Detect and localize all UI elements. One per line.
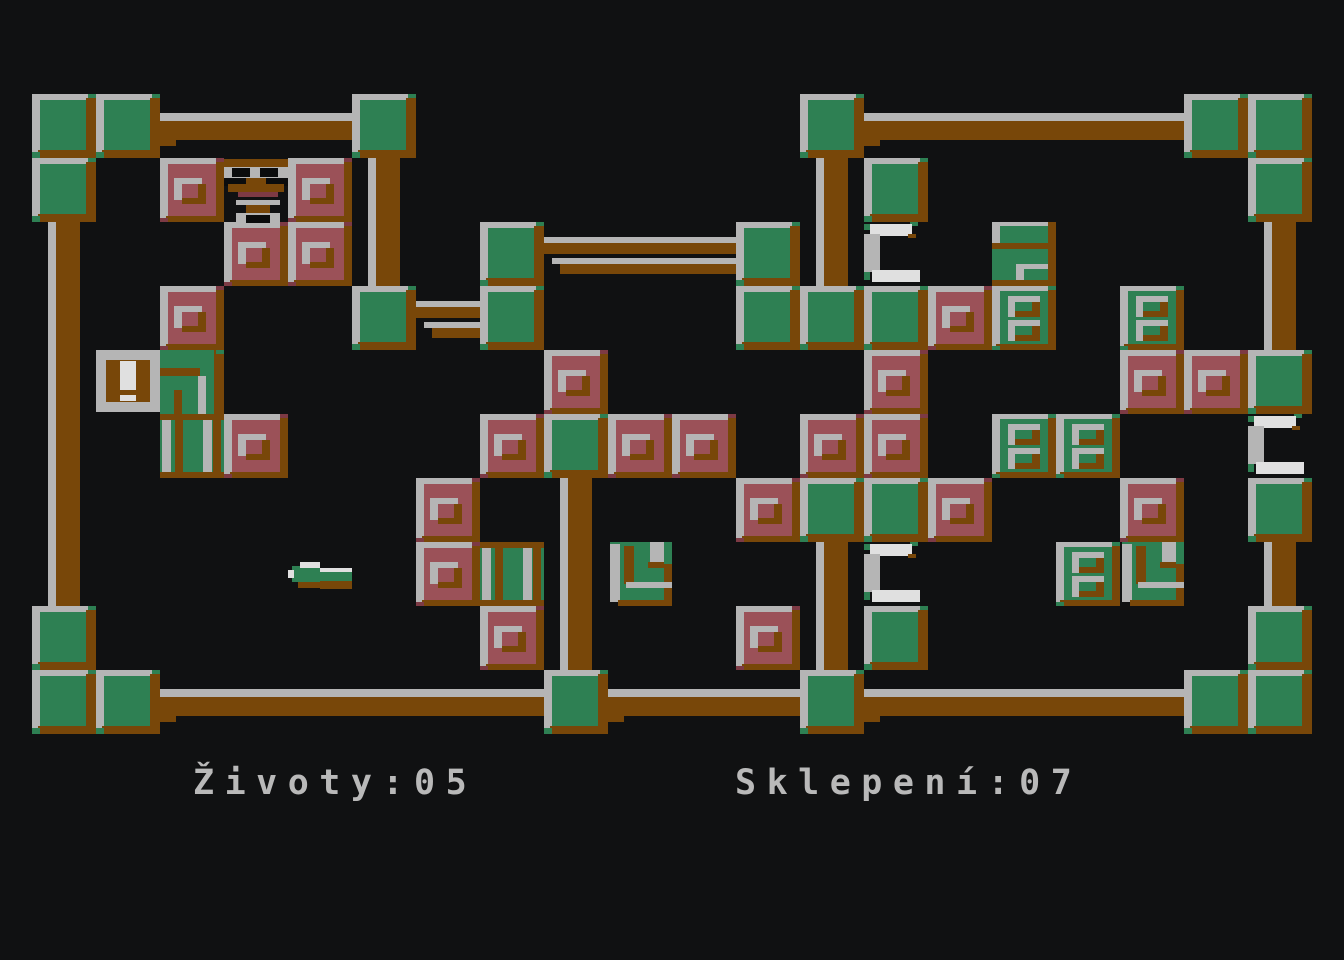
- game-screen[interactable]: Životy:05 Sklepení:07: [0, 0, 1344, 960]
- pink-stud-block: [864, 414, 928, 478]
- green-block: [352, 94, 416, 158]
- beam: [416, 286, 480, 350]
- striped-block: [160, 414, 224, 478]
- pillar: [1248, 222, 1312, 350]
- pink-stud-block: [672, 414, 736, 478]
- pillar: [800, 158, 864, 286]
- pink-stud-block: [1120, 478, 1184, 542]
- beam: [864, 670, 1184, 734]
- pink-stud-block: [288, 222, 352, 286]
- pink-stud-block: [288, 158, 352, 222]
- green-block: [352, 286, 416, 350]
- green-block: [1248, 606, 1312, 670]
- pink-stud-block: [480, 414, 544, 478]
- key-block: [1120, 542, 1184, 606]
- door-block: [160, 350, 224, 414]
- green-block: [1248, 94, 1312, 158]
- green-block: [544, 670, 608, 734]
- window-block: [1120, 286, 1184, 350]
- pink-stud-block: [224, 222, 288, 286]
- green-block: [800, 286, 864, 350]
- beam: [160, 670, 544, 734]
- window-block: [992, 286, 1056, 350]
- horseshoe-sprite: [864, 222, 928, 286]
- green-block: [96, 670, 160, 734]
- pink-stud-block: [736, 478, 800, 542]
- pink-stud-block: [160, 158, 224, 222]
- pillar: [544, 478, 608, 670]
- striped-block: [480, 542, 544, 606]
- window-block: [1056, 414, 1120, 478]
- green-block: [736, 286, 800, 350]
- green-block: [1184, 670, 1248, 734]
- exclamation-block: [96, 350, 160, 414]
- game-board: [0, 0, 1344, 960]
- green-block: [96, 94, 160, 158]
- beam: [608, 670, 800, 734]
- pink-stud-block: [800, 414, 864, 478]
- pillar: [800, 542, 864, 670]
- green-block: [1184, 94, 1248, 158]
- beam: [864, 94, 1184, 158]
- pink-stud-block: [864, 350, 928, 414]
- green-block: [1248, 158, 1312, 222]
- pink-stud-block: [416, 542, 480, 606]
- green-block: [32, 94, 96, 158]
- green-block: [1248, 478, 1312, 542]
- key-block: [608, 542, 672, 606]
- dungeon-counter: Sklepení:07: [735, 763, 1082, 803]
- pink-stud-block: [928, 286, 992, 350]
- green-block: [32, 158, 96, 222]
- green-block: [32, 606, 96, 670]
- arrow-sprite: [288, 542, 352, 606]
- pink-stud-block: [928, 478, 992, 542]
- green-block: [480, 286, 544, 350]
- window-block: [992, 414, 1056, 478]
- pink-stud-block: [224, 414, 288, 478]
- beam: [544, 222, 736, 286]
- pink-stud-block: [736, 606, 800, 670]
- pink-stud-block: [1120, 350, 1184, 414]
- horseshoe-sprite: [864, 542, 928, 606]
- spider-sprite: [224, 158, 288, 222]
- pink-stud-block: [1184, 350, 1248, 414]
- pillar: [352, 158, 416, 286]
- green-block: [480, 222, 544, 286]
- lives-counter: Životy:05: [193, 763, 477, 803]
- green-block: [864, 606, 928, 670]
- pink-stud-block: [160, 286, 224, 350]
- green-block: [864, 158, 928, 222]
- green-block: [864, 286, 928, 350]
- window-block: [1056, 542, 1120, 606]
- pillar: [32, 222, 96, 606]
- pink-stud-block: [416, 478, 480, 542]
- shelf-block: [992, 222, 1056, 286]
- green-block: [32, 670, 96, 734]
- green-block: [800, 94, 864, 158]
- green-block: [864, 478, 928, 542]
- pillar: [1248, 542, 1312, 606]
- green-block: [544, 414, 608, 478]
- green-block: [1248, 350, 1312, 414]
- pink-stud-block: [480, 606, 544, 670]
- pink-stud-block: [608, 414, 672, 478]
- green-block: [736, 222, 800, 286]
- pink-stud-block: [544, 350, 608, 414]
- green-block: [1248, 670, 1312, 734]
- horseshoe-sprite: [1248, 414, 1312, 478]
- green-block: [800, 670, 864, 734]
- green-block: [800, 478, 864, 542]
- beam: [160, 94, 352, 158]
